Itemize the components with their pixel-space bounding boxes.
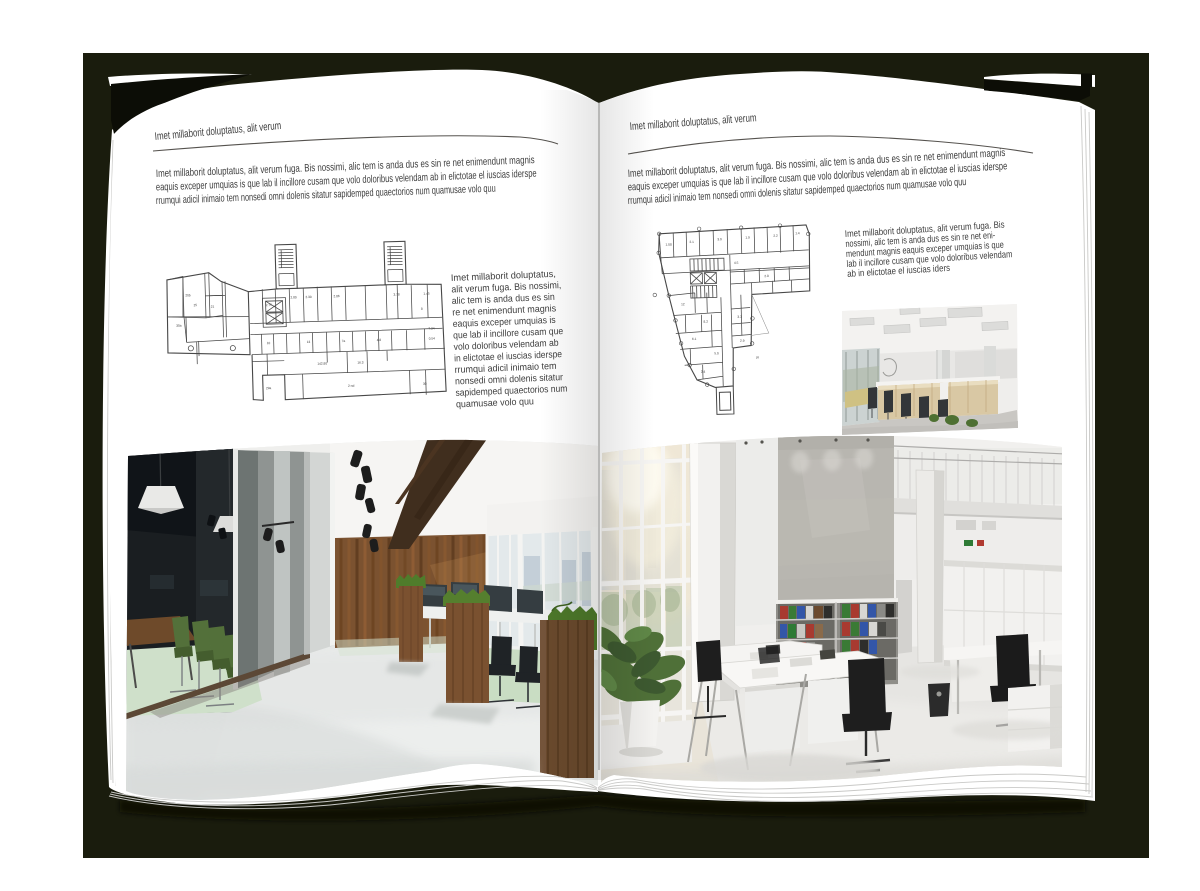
- svg-text:2-nd: 2-nd: [348, 384, 355, 388]
- svg-text:4.5: 4.5: [734, 261, 739, 265]
- svg-text:30a: 30a: [176, 324, 182, 328]
- svg-text:13: 13: [307, 340, 311, 344]
- svg-text:7a: 7a: [342, 339, 346, 343]
- svg-text:30: 30: [423, 382, 427, 386]
- svg-text:8: 8: [421, 307, 423, 311]
- svg-text:5.0: 5.0: [714, 351, 719, 355]
- svg-text:6.1: 6.1: [692, 337, 697, 341]
- svg-text:2.80: 2.80: [290, 295, 297, 299]
- svg-text:12: 12: [681, 302, 685, 306]
- svg-text:2.2: 2.2: [773, 234, 778, 238]
- svg-text:20b: 20b: [185, 293, 191, 297]
- svg-text:1.45: 1.45: [423, 292, 430, 296]
- svg-text:3.3: 3.3: [737, 315, 742, 319]
- svg-text:2.8: 2.8: [764, 274, 769, 278]
- svg-text:2.86: 2.86: [333, 294, 340, 298]
- svg-text:10: 10: [267, 341, 271, 345]
- svg-text:0.54: 0.54: [429, 336, 436, 340]
- svg-text:3.0: 3.0: [717, 237, 722, 241]
- svg-text:2.9: 2.9: [740, 339, 745, 343]
- svg-text:1.9: 1.9: [745, 235, 750, 239]
- svg-text:2.75: 2.75: [266, 303, 273, 307]
- svg-text:j6: j6: [755, 355, 759, 359]
- svg-text:21: 21: [211, 305, 215, 309]
- svg-text:16.3: 16.3: [357, 360, 364, 364]
- svg-text:2.1: 2.1: [689, 240, 694, 244]
- svg-text:2.4: 2.4: [701, 370, 706, 374]
- svg-text:4.8: 4.8: [377, 338, 382, 342]
- svg-text:25: 25: [194, 303, 198, 307]
- svg-text:1.4: 1.4: [795, 231, 800, 235]
- svg-text:7.24: 7.24: [428, 326, 435, 330]
- svg-text:1.08: 1.08: [665, 243, 672, 247]
- svg-text:8.2: 8.2: [703, 320, 708, 324]
- svg-text:29a: 29a: [266, 386, 272, 390]
- svg-text:2.30: 2.30: [305, 295, 312, 299]
- svg-text:142.80: 142.80: [317, 361, 327, 365]
- svg-text:3.78: 3.78: [393, 292, 400, 296]
